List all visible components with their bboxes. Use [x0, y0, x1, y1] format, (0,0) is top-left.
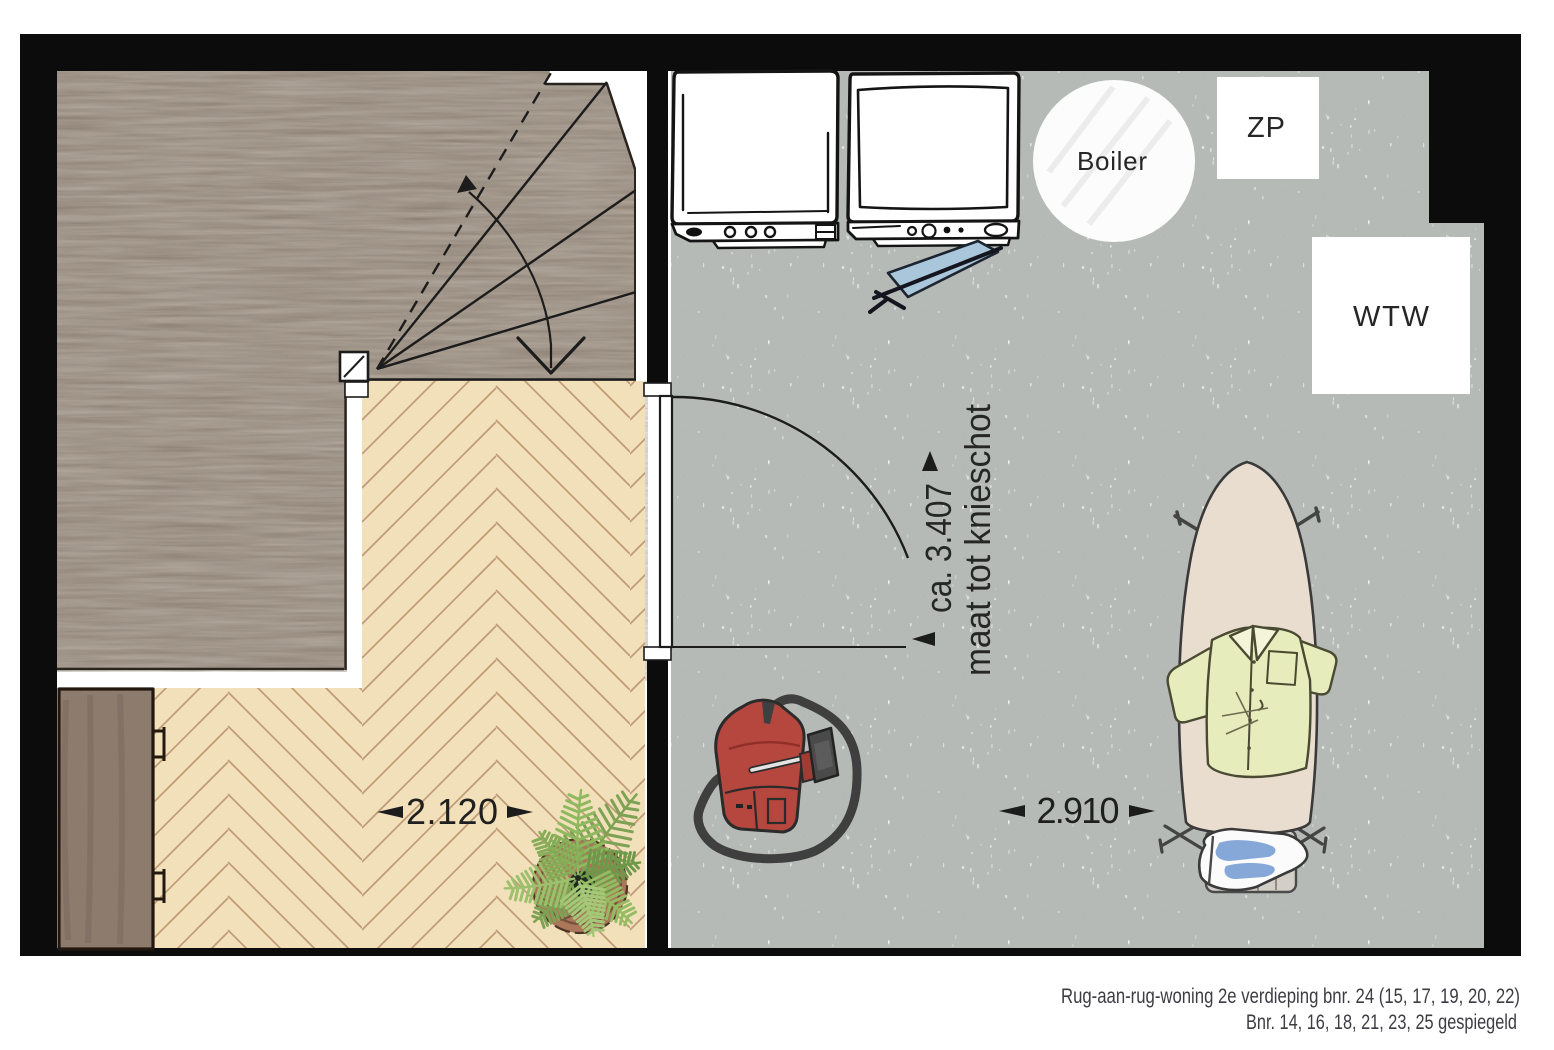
svg-text:maat tot knieschot: maat tot knieschot — [957, 404, 998, 676]
svg-text:Boiler: Boiler — [1077, 146, 1147, 176]
svg-text:2.120: 2.120 — [406, 791, 498, 832]
svg-text:2.910: 2.910 — [1037, 790, 1120, 831]
svg-text:Bnr. 14, 16, 18, 21, 23, 25 ge: Bnr. 14, 16, 18, 21, 23, 25 gespiegeld — [1246, 1010, 1517, 1034]
svg-text:ca. 3.407: ca. 3.407 — [918, 483, 959, 613]
svg-text:WTW: WTW — [1353, 301, 1430, 333]
svg-text:ZP: ZP — [1247, 112, 1285, 144]
svg-text:Rug-aan-rug-woning 2e verdiepi: Rug-aan-rug-woning 2e verdieping bnr. 24… — [1061, 984, 1520, 1008]
